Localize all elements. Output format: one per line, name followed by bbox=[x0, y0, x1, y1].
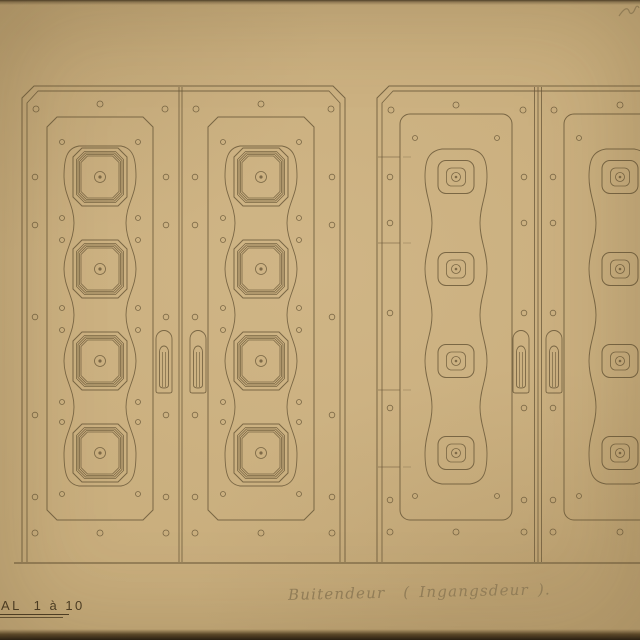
door-panel bbox=[400, 114, 512, 520]
door-handle bbox=[546, 331, 562, 394]
door-handle bbox=[190, 331, 206, 394]
scale-underline bbox=[0, 614, 69, 615]
panel-boss bbox=[73, 148, 127, 206]
panel-boss bbox=[602, 345, 638, 378]
panel-boss bbox=[234, 332, 288, 390]
door-leaf bbox=[378, 102, 529, 535]
panel-boss bbox=[602, 161, 638, 194]
door-elevation-drawing bbox=[0, 0, 640, 640]
panel-boss bbox=[438, 161, 474, 194]
door-handle bbox=[156, 331, 172, 394]
panel-boss bbox=[73, 240, 127, 298]
door-frame-inner bbox=[27, 91, 340, 562]
panel-boss bbox=[438, 253, 474, 286]
ink-layer bbox=[14, 6, 640, 563]
ornate-door-pair bbox=[22, 86, 345, 562]
panel-boss bbox=[234, 148, 288, 206]
panel-moulding bbox=[225, 146, 297, 486]
panel-moulding bbox=[64, 146, 136, 486]
paper-background: AL 1 à 10 Buitendeur ( Ingangsdeur ). bbox=[0, 0, 640, 640]
panel-boss bbox=[438, 345, 474, 378]
rivets bbox=[32, 101, 169, 536]
scale-underline-2 bbox=[0, 617, 63, 618]
panel-boss bbox=[73, 424, 127, 482]
panel-moulding bbox=[425, 149, 487, 484]
door-leaf bbox=[32, 101, 172, 536]
panel-boss bbox=[438, 437, 474, 470]
door-leaf bbox=[546, 102, 640, 535]
scale-label: AL 1 à 10 bbox=[1, 598, 85, 613]
door-frame-outer bbox=[22, 86, 345, 562]
door-leaf bbox=[190, 101, 335, 536]
pencil-scribble bbox=[619, 6, 639, 16]
panel-moulding bbox=[589, 149, 640, 484]
door-frame-outer bbox=[377, 86, 640, 562]
door-handle bbox=[513, 331, 529, 394]
simple-door-pair bbox=[377, 86, 640, 562]
panel-boss bbox=[234, 424, 288, 482]
door-frame-inner bbox=[382, 91, 640, 562]
panel-boss bbox=[602, 437, 638, 470]
panel-boss bbox=[73, 332, 127, 390]
panel-boss bbox=[234, 240, 288, 298]
panel-boss bbox=[602, 253, 638, 286]
rivets bbox=[387, 102, 527, 535]
